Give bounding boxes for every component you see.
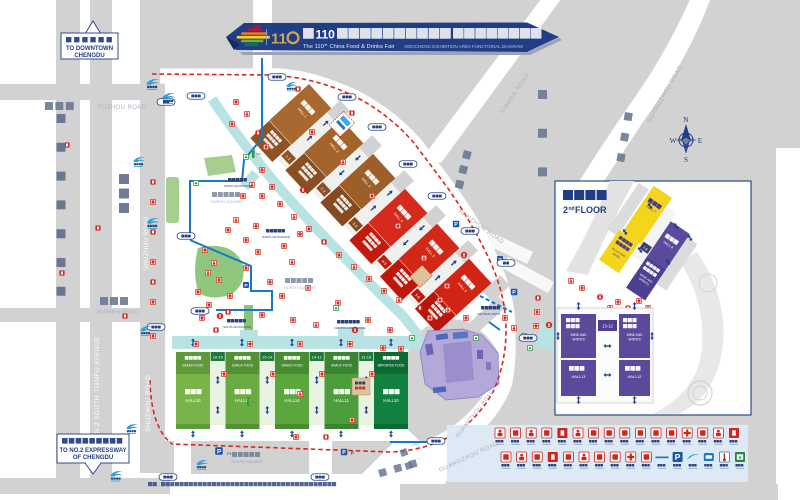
svg-text:LED: LED bbox=[256, 152, 261, 156]
svg-text:TO DOWNTOWN: TO DOWNTOWN bbox=[66, 46, 113, 52]
svg-text:S: S bbox=[684, 155, 688, 164]
svg-text:P1: P1 bbox=[227, 451, 233, 456]
svg-text:NORTH SQUARE: NORTH SQUARE bbox=[211, 199, 243, 204]
svg-text:E: E bbox=[698, 136, 703, 145]
svg-text:P: P bbox=[351, 451, 354, 456]
svg-text:HALL11: HALL11 bbox=[334, 398, 349, 403]
svg-text:SOUTH ENTRANCE: SOUTH ENTRANCE bbox=[223, 325, 251, 329]
svg-text:HALL10: HALL10 bbox=[383, 398, 399, 403]
svg-text:14-11: 14-11 bbox=[312, 355, 323, 360]
svg-text:P: P bbox=[454, 222, 458, 228]
svg-text:HALL14: HALL14 bbox=[284, 398, 300, 403]
svg-text:SHUZHOU ROAD: SHUZHOU ROAD bbox=[144, 216, 150, 270]
svg-text:NORTH ENTRANCE: NORTH ENTRANCE bbox=[224, 184, 252, 188]
svg-text:China Food & Drinks Fair: China Food & Drinks Fair bbox=[330, 44, 395, 50]
svg-text:NORTH SQUARE: NORTH SQUARE bbox=[284, 285, 316, 290]
svg-text:SPIRITS: SPIRITS bbox=[572, 338, 584, 342]
svg-text:SNACK FOOD: SNACK FOOD bbox=[331, 364, 353, 368]
svg-text:SPIRITS: SPIRITS bbox=[628, 338, 640, 342]
svg-text:BAKED FOOD: BAKED FOOD bbox=[183, 364, 205, 368]
svg-text:CENTRAL ENTRANCE: CENTRAL ENTRANCE bbox=[334, 326, 365, 330]
svg-text:SOUTH SQUARE: SOUTH SQUARE bbox=[231, 459, 263, 464]
svg-text::: : bbox=[159, 482, 160, 487]
svg-text:P: P bbox=[342, 450, 346, 456]
svg-text:FLOOR: FLOOR bbox=[575, 205, 607, 215]
svg-text:16-15: 16-15 bbox=[213, 355, 224, 360]
svg-text:nd: nd bbox=[569, 206, 575, 212]
svg-text:P: P bbox=[217, 448, 221, 455]
svg-text:OF CHENGDU: OF CHENGDU bbox=[73, 455, 113, 461]
svg-text:CHENGDU: CHENGDU bbox=[74, 53, 104, 59]
svg-text:XIBOCHENG EXHIBITION AREA FUNC: XIBOCHENG EXHIBITION AREA FUNCTIONAL DIA… bbox=[404, 44, 523, 49]
svg-text:SNACK FOOD: SNACK FOOD bbox=[281, 364, 303, 368]
svg-text:TO NO.2 EXPRESSWAY: TO NO.2 EXPRESSWAY bbox=[59, 448, 126, 454]
svg-text:13-12: 13-12 bbox=[602, 324, 613, 329]
svg-text:N: N bbox=[683, 115, 689, 124]
svg-text:110: 110 bbox=[316, 28, 336, 42]
svg-text:LED: LED bbox=[251, 400, 256, 404]
svg-text:HALL13: HALL13 bbox=[572, 375, 586, 379]
svg-text:th: th bbox=[325, 43, 328, 47]
svg-text:WINE AND: WINE AND bbox=[571, 333, 587, 337]
svg-text:XIAMEN ROAD: XIAMEN ROAD bbox=[97, 310, 139, 316]
svg-text:NORTH ENTRANCE: NORTH ENTRANCE bbox=[262, 235, 290, 239]
svg-text:P: P bbox=[675, 452, 681, 462]
svg-text:W: W bbox=[669, 136, 677, 145]
svg-text:WINE AND: WINE AND bbox=[627, 333, 643, 337]
svg-text:HALL16: HALL16 bbox=[185, 398, 201, 403]
svg-text:CENTRAL ENTR.: CENTRAL ENTR. bbox=[477, 312, 501, 316]
svg-text:SHUZHOU ROAD: SHUZHOU ROAD bbox=[145, 375, 152, 432]
svg-text:HALL12: HALL12 bbox=[628, 375, 642, 379]
svg-text:11: 11 bbox=[271, 31, 287, 48]
svg-text:FUZHOU ROAD: FUZHOU ROAD bbox=[98, 105, 147, 111]
svg-text:2: 2 bbox=[563, 205, 568, 215]
svg-text:15-14: 15-14 bbox=[262, 355, 273, 360]
svg-text:SNACK FOOD: SNACK FOOD bbox=[232, 364, 254, 368]
svg-text:11-10: 11-10 bbox=[361, 355, 372, 360]
svg-text:The 110: The 110 bbox=[303, 44, 324, 50]
svg-text:P: P bbox=[512, 290, 516, 296]
svg-text:IMPORTED FOOD: IMPORTED FOOD bbox=[378, 364, 406, 368]
